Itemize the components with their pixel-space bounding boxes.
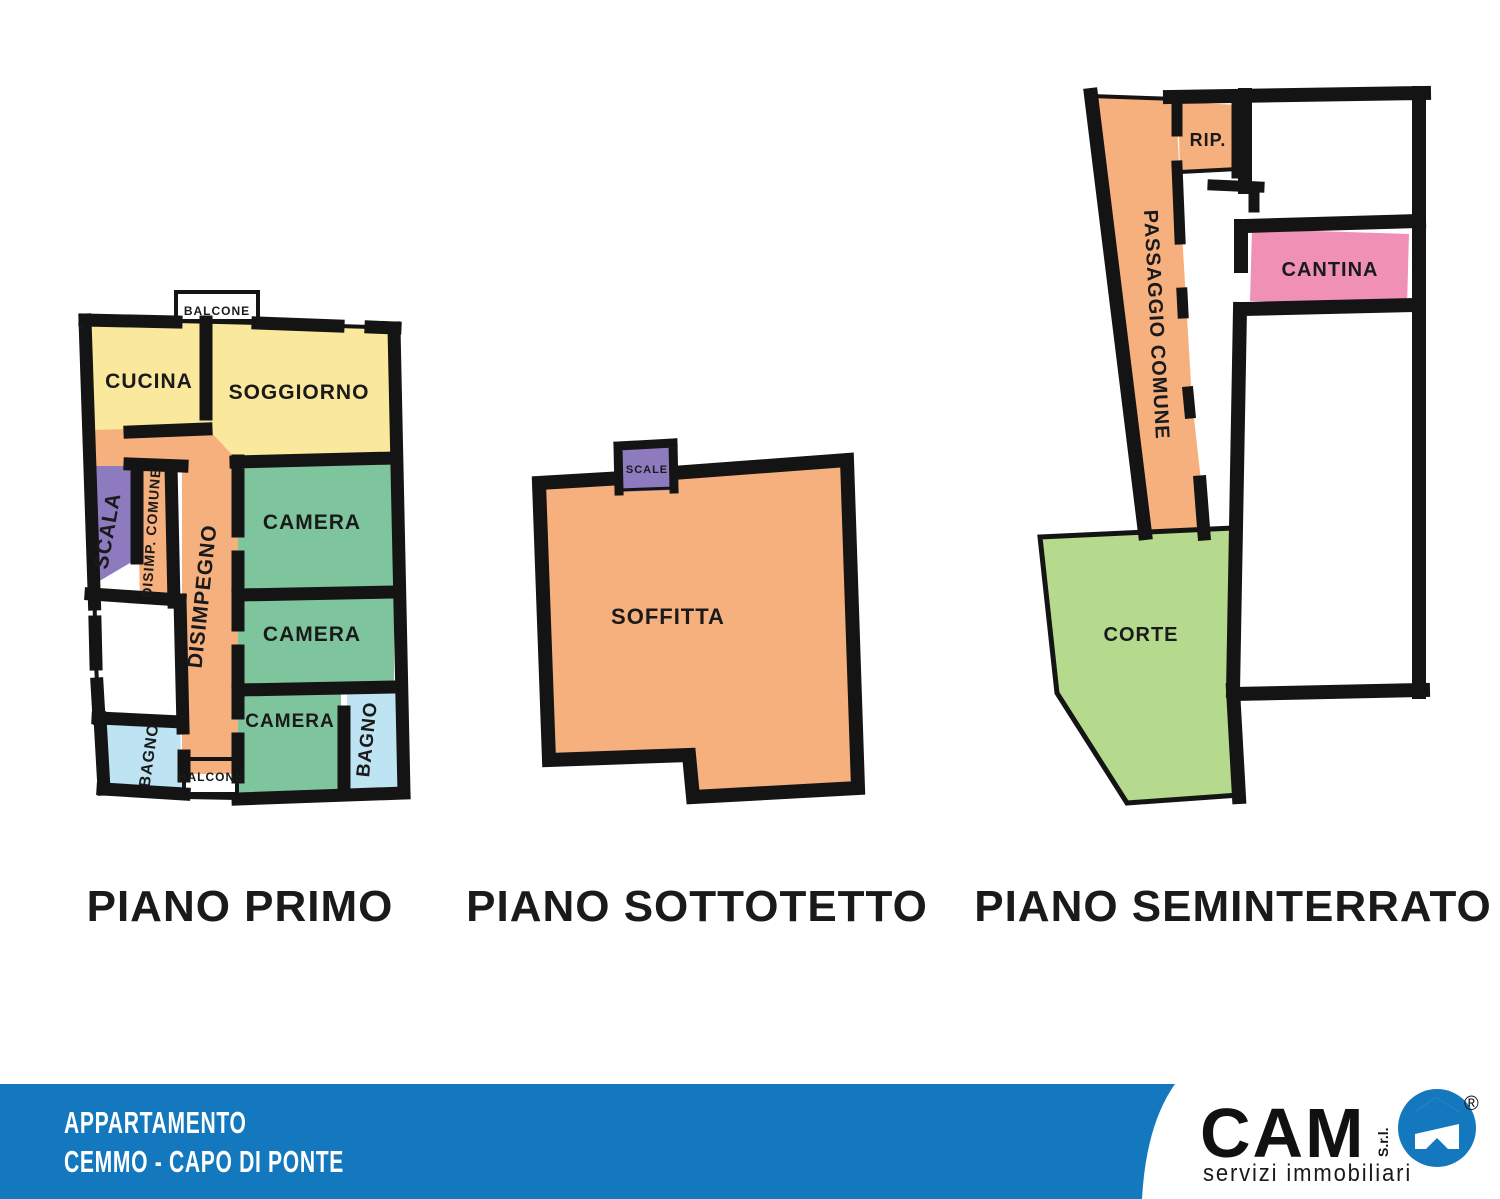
scale-room-bottom-line	[619, 488, 674, 490]
soffitta-label: SOFFITTA	[611, 604, 725, 629]
cantina-label: CANTINA	[1282, 259, 1379, 281]
registered-mark: ®	[1464, 1093, 1479, 1115]
footer-line1: APPARTAMENTO	[64, 1105, 247, 1140]
rip-label: RIP.	[1190, 130, 1227, 150]
plan-piano-primo: BALCONE CUCINA SOGGIORNO SCALA DISIMP. C…	[85, 292, 404, 931]
corte-shape	[1040, 528, 1239, 803]
camera2-label: CAMERA	[263, 623, 361, 646]
plan-piano-seminterrato: PASSAGGIO COMUNE RIP. CANTINA CORTE PIAN…	[974, 93, 1492, 931]
plan-piano-sottotetto: SCALE SOFFITTA PIANO SOTTOTETTO	[466, 443, 928, 931]
floorplan-sheet: { "colors": { "wall": "#141414", "yellow…	[0, 0, 1500, 1199]
balcone-bottom-label: BALCONE	[178, 770, 244, 784]
footer: APPARTAMENTO CEMMO - CAPO DI PONTE CAM S…	[0, 1084, 1500, 1199]
soggiorno-label: SOGGIORNO	[229, 381, 370, 404]
plan2-title: PIANO SOTTOTETTO	[466, 882, 928, 931]
camera3-room-shape	[238, 692, 341, 796]
scale-label: SCALE	[626, 464, 668, 476]
footer-line2: CEMMO - CAPO DI PONTE	[64, 1144, 344, 1179]
camera1-label: CAMERA	[263, 511, 361, 534]
cucina-label: CUCINA	[105, 370, 193, 393]
corte-label: CORTE	[1104, 624, 1179, 646]
cam-logo-tagline: servizi immobiliari	[1203, 1159, 1412, 1186]
cam-logo-srl: S.r.l.	[1375, 1127, 1391, 1157]
plan3-title: PIANO SEMINTERRATO	[974, 882, 1492, 931]
empty-room-shape	[92, 600, 182, 722]
plan1-title: PIANO PRIMO	[87, 882, 394, 931]
floorplan-canvas: BALCONE CUCINA SOGGIORNO SCALA DISIMP. C…	[0, 0, 1500, 1199]
balcone-top-label: BALCONE	[184, 304, 250, 318]
camera3-label: CAMERA	[245, 711, 334, 732]
